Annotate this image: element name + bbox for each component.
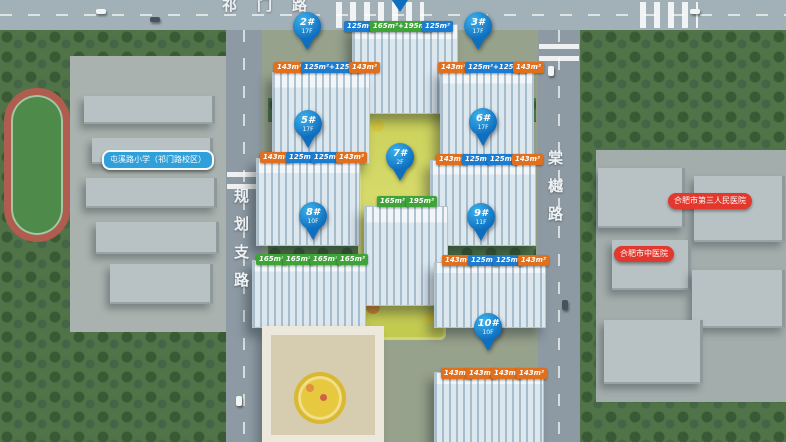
map-pin-tip-icon [392, 0, 408, 12]
building-8 [252, 260, 366, 328]
unit-tag: 143m² [336, 152, 367, 163]
unit-tag: 143m² [349, 62, 380, 73]
school-building [110, 264, 213, 304]
unit-tag: 143m² [513, 62, 544, 73]
hospital-building [604, 320, 703, 384]
building-pin-3: 3#17F [464, 12, 492, 50]
unit-tag: 143m² [516, 368, 547, 379]
pin-tail-icon [306, 228, 320, 240]
pin-tail-icon [300, 38, 314, 50]
pin-tail-icon [481, 339, 495, 351]
play-dot [306, 384, 314, 392]
site-plan-rendering: 祁门路 规划支路 棠樾路 125m² 165m²+195m² 125m² 143… [0, 0, 786, 442]
hospital-building [694, 176, 785, 242]
hospital-building [692, 270, 785, 328]
unit-tag: 165m² [337, 254, 368, 265]
school-building [96, 222, 219, 254]
building-pin-5: 5#17F [294, 110, 322, 148]
car [150, 17, 160, 22]
building-pin-9: 9#11F [467, 203, 495, 241]
car [690, 9, 700, 14]
autumn-tree [372, 120, 384, 132]
road-label-left: 规划支路 [231, 188, 252, 300]
play-dot [320, 394, 327, 401]
running-track [4, 88, 70, 242]
building-pin-10: 10#10F [474, 313, 502, 351]
pin-tail-icon [476, 134, 490, 146]
car [548, 66, 554, 76]
car [96, 9, 106, 14]
car [236, 396, 242, 406]
unit-tag: 165m² [377, 196, 408, 207]
unit-tag: 195m² [406, 196, 437, 207]
pin-tail-icon [474, 229, 488, 241]
building-pin-8: 8#10F [299, 202, 327, 240]
car [562, 300, 568, 310]
poi-hospital-3rd-label: 合肥市第三人民医院 [668, 193, 752, 209]
pin-tail-icon [393, 169, 407, 181]
pin-tail-icon [471, 38, 485, 50]
school-building [84, 96, 215, 124]
poi-tcm-hospital-label: 合肥市中医院 [614, 246, 674, 262]
lane-line [558, 30, 560, 442]
building-10 [434, 372, 544, 442]
road-label-right: 棠樾路 [545, 150, 566, 234]
poi-school-label: 屯溪路小学（祁门路校区） [102, 150, 214, 170]
unit-tag: 125m² [422, 21, 453, 32]
crosswalk [539, 44, 579, 62]
building-pin-6: 6#17F [469, 108, 497, 146]
pin-tail-icon [301, 136, 315, 148]
unit-tag: 143m² [518, 255, 549, 266]
school-building [86, 178, 217, 208]
building-pin-7: 7#2F [386, 143, 414, 181]
building-pin-2: 2#17F [293, 12, 321, 50]
unit-tag: 143m² [512, 154, 543, 165]
crosswalk [640, 2, 698, 28]
